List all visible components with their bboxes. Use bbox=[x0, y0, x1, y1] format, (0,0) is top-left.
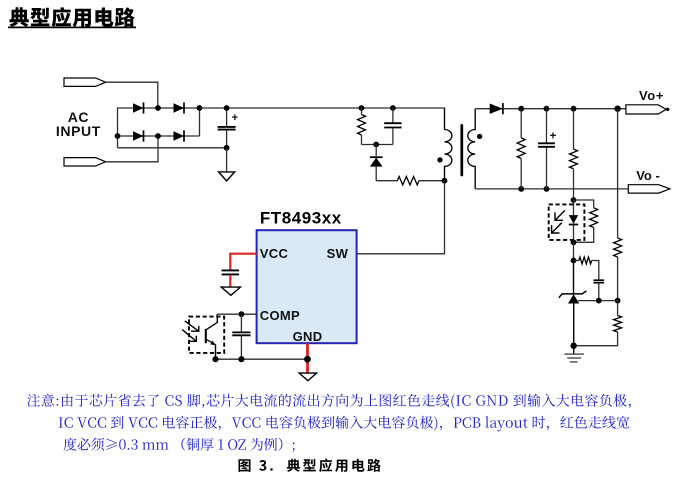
svg-text:SW: SW bbox=[327, 246, 349, 261]
svg-text:GND: GND bbox=[293, 329, 323, 344]
svg-text:+: + bbox=[550, 130, 557, 142]
svg-text:Vo+: Vo+ bbox=[639, 88, 664, 103]
svg-text:VCC: VCC bbox=[260, 246, 289, 261]
svg-text:COMP: COMP bbox=[260, 308, 300, 323]
svg-text:+: + bbox=[232, 112, 238, 124]
svg-text:Vo -: Vo - bbox=[636, 168, 660, 183]
svg-text:INPUT: INPUT bbox=[56, 123, 101, 139]
svg-text:FT8493xx: FT8493xx bbox=[260, 209, 342, 228]
